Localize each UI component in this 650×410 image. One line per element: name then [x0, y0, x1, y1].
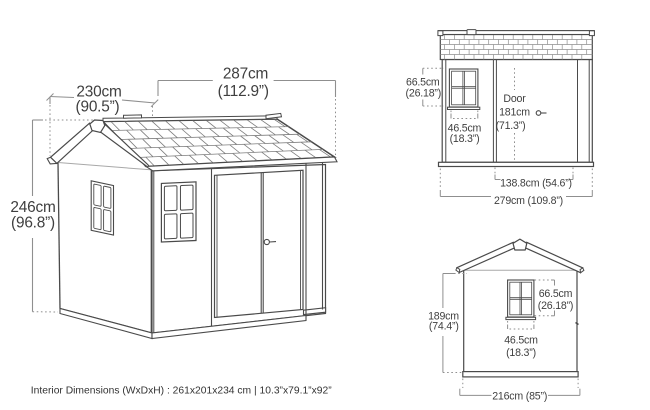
svg-text:(112.9”): (112.9”)	[218, 83, 269, 100]
svg-text:138.8cm (54.6”): 138.8cm (54.6”)	[500, 177, 572, 189]
svg-text:279cm (109.8”): 279cm (109.8”)	[494, 195, 563, 207]
svg-text:(90.5”): (90.5”)	[76, 99, 120, 116]
svg-text:Door: Door	[503, 93, 526, 105]
svg-text:287cm: 287cm	[223, 66, 268, 83]
svg-text:(18.3”): (18.3”)	[506, 347, 536, 359]
svg-text:(96.8”): (96.8”)	[11, 215, 55, 232]
svg-text:(74.4”): (74.4”)	[429, 321, 459, 333]
svg-text:181cm: 181cm	[499, 107, 530, 119]
svg-text:(71.3”): (71.3”)	[496, 120, 526, 132]
svg-text:246cm: 246cm	[10, 199, 55, 216]
svg-text:(26.18”): (26.18”)	[406, 87, 442, 99]
svg-text:(26.18”): (26.18”)	[538, 300, 574, 312]
svg-text:66.5cm: 66.5cm	[539, 288, 573, 300]
svg-text:216cm (85”): 216cm (85”)	[492, 391, 547, 403]
svg-text:46.5cm: 46.5cm	[504, 335, 538, 347]
svg-text:(18.3”): (18.3”)	[450, 133, 480, 145]
svg-text:Interior Dimensions (WxDxH) :: Interior Dimensions (WxDxH) : 261x201x23…	[31, 385, 332, 396]
